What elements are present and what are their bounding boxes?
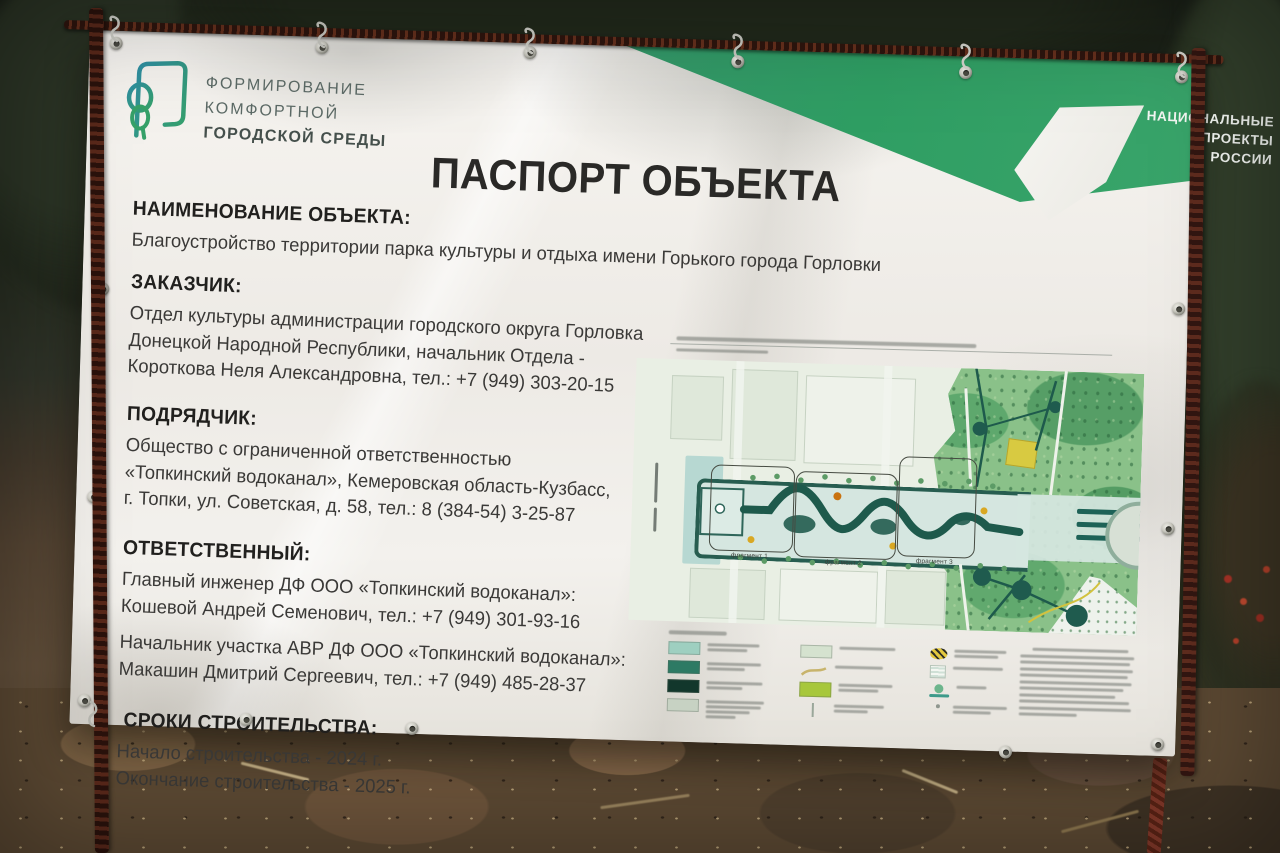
legend-row — [800, 664, 895, 678]
legend-row — [800, 645, 895, 660]
legend-column-3 — [929, 648, 1009, 715]
red-berries — [1224, 575, 1232, 583]
red-berries — [1240, 598, 1247, 605]
swatch-darkest-green — [667, 679, 699, 693]
caption-line — [676, 348, 768, 353]
swatch-gray-green — [667, 698, 699, 712]
red-berries — [1263, 566, 1270, 573]
legend-row — [799, 682, 894, 699]
national-projects-logo: НАЦИОНАЛЬНЫЕ ПРОЕКТЫ РОССИИ — [1054, 102, 1275, 170]
outdoor-photo-scene: НАЦИОНАЛЬНЫЕ ПРОЕКТЫ РОССИИ ФОРМИРОВАНИЕ… — [0, 0, 1280, 853]
s-hook — [1173, 49, 1189, 79]
fragment-2-outline — [793, 471, 898, 560]
legend-row — [668, 660, 765, 676]
legend-row — [668, 641, 765, 657]
red-berries — [1233, 638, 1239, 644]
page-title: ПАСПОРТ ОБЪЕКТА — [403, 148, 869, 213]
legend-row — [929, 684, 1007, 700]
curved-path-symbol — [800, 664, 828, 677]
s-hook — [957, 41, 973, 71]
plan-legend — [627, 629, 1137, 728]
s-hook — [521, 25, 537, 55]
legend-row — [930, 648, 1008, 661]
legend-row — [930, 665, 1008, 680]
dot-symbol — [929, 704, 946, 712]
swatch-yellow-green — [799, 682, 831, 698]
line-symbol — [799, 703, 827, 718]
legend-row — [929, 704, 1007, 715]
swatch-dark-teal — [668, 660, 700, 674]
swatch-light-teal — [668, 641, 700, 655]
caption-line — [676, 336, 976, 347]
master-plan-map: фрагмент 1 фрагмент 2 фрагмент 3 — [628, 358, 1144, 636]
site-plan-panel: фрагмент 1 фрагмент 2 фрагмент 3 — [627, 331, 1145, 724]
grommet — [1172, 302, 1185, 315]
grommet — [1161, 522, 1174, 535]
s-hook — [729, 31, 745, 61]
comfortable-urban-environment-logo: ФОРМИРОВАНИЕ КОМФОРТНОЙ ГОРОДСКОЙ СРЕДЫ — [122, 55, 390, 155]
red-berries — [1256, 614, 1264, 622]
park-yellow-path — [1029, 580, 1100, 624]
construction-passport-banner: НАЦИОНАЛЬНЫЕ ПРОЕКТЫ РОССИИ ФОРМИРОВАНИЕ… — [69, 30, 1195, 757]
legend-notes-paragraph — [1019, 647, 1139, 718]
hatch-symbol — [930, 665, 946, 678]
tree-symbol — [929, 684, 949, 699]
legend-row — [667, 679, 764, 695]
legend-row — [667, 698, 764, 719]
fragment-1-outline — [709, 464, 796, 553]
legend-column-2 — [799, 645, 896, 719]
legend-title-illegible — [669, 630, 727, 635]
fragment-3-outline — [897, 456, 978, 558]
tree-frame-icon — [122, 55, 192, 144]
swatch-pale-green — [800, 645, 832, 659]
s-hook — [106, 13, 122, 43]
striped-sign-symbol — [930, 648, 947, 659]
section-construction-dates: СРОКИ СТРОИТЕЛЬСТВА: Начало строительств… — [115, 709, 897, 817]
grommet — [1151, 738, 1164, 751]
legend-column-1 — [667, 641, 766, 719]
s-hook — [313, 19, 329, 49]
program-logo-text: ФОРМИРОВАНИЕ КОМФОРТНОЙ ГОРОДСКОЙ СРЕДЫ — [203, 59, 390, 155]
s-hook — [86, 700, 102, 730]
legend-row — [799, 703, 894, 719]
